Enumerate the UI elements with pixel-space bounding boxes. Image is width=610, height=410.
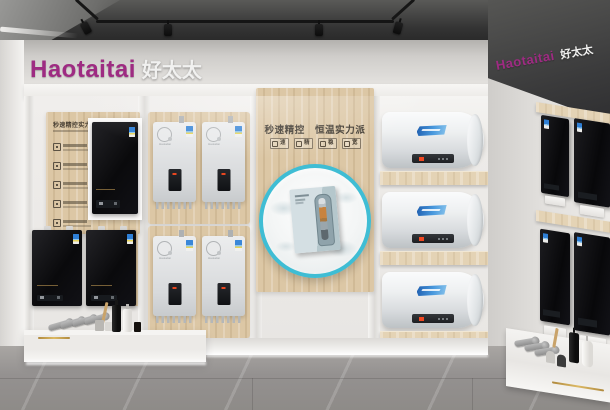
heater-dial	[157, 241, 172, 256]
black-gas-heater	[92, 122, 138, 214]
heater-display	[168, 283, 181, 305]
brand-latin: Haotaitai	[30, 56, 136, 84]
floor-seam	[472, 378, 473, 410]
heater-display	[544, 183, 559, 191]
heater-display	[96, 200, 120, 207]
feature-icon	[53, 219, 61, 227]
heater-brand-text: Haotaitai	[208, 142, 220, 146]
track-spotlight	[164, 24, 172, 36]
product-cutaway-card	[289, 186, 340, 254]
energy-label-icon	[577, 122, 582, 132]
shelf-strip	[380, 171, 488, 185]
feature-badge: 速	[270, 138, 289, 149]
black-wall-heater	[541, 115, 569, 197]
heater-pipe	[179, 230, 184, 237]
heater-pipes	[205, 202, 242, 209]
energy-label-icon	[544, 119, 549, 129]
tank-end-cap	[467, 274, 483, 326]
heater-pipes	[156, 316, 193, 323]
white-gas-heater: Haotaitai	[153, 122, 196, 202]
heater-display	[217, 169, 230, 191]
tank-decal	[417, 125, 447, 136]
canister	[546, 350, 555, 363]
feature-icon	[53, 162, 61, 170]
heater-display	[578, 318, 598, 328]
heater-brand-text: Haotaitai	[208, 256, 220, 260]
gold-towel-bar	[38, 337, 70, 339]
heater-brand-text: Haotaitai	[159, 256, 171, 260]
black-wall-heater	[574, 232, 610, 336]
brand-logo-left: Haotaitai 好太太	[30, 54, 202, 84]
heating-element	[318, 198, 329, 240]
black-wall-heater	[540, 229, 570, 326]
gold-trim-line	[37, 285, 58, 286]
shelf-strip	[380, 251, 488, 265]
energy-label-icon	[543, 233, 548, 243]
white-gas-heater: Haotaitai	[153, 236, 196, 316]
gold-trim-line	[91, 285, 112, 286]
heater-dial	[206, 241, 221, 256]
canister	[557, 354, 566, 367]
white-pump-bottle	[582, 340, 593, 368]
black-wall-heater	[574, 118, 610, 208]
energy-label-icon	[235, 126, 242, 137]
tank-end-cap	[467, 194, 483, 246]
feature-row	[53, 199, 93, 213]
heater-display	[37, 295, 63, 301]
feature-badge: 精	[294, 138, 313, 149]
black-gas-heater	[86, 230, 136, 306]
stability-icon	[320, 141, 326, 147]
storage-water-heater	[382, 112, 484, 168]
tank-decal	[417, 285, 447, 296]
energy-label-icon	[127, 234, 133, 244]
heater-brand-text: Haotaitai	[159, 142, 171, 146]
heater-pipes	[205, 316, 242, 323]
feature-row	[53, 180, 93, 194]
cutaway-window	[314, 193, 335, 246]
baseboard-glow	[206, 352, 488, 357]
track-light-rail	[96, 20, 394, 23]
energy-label-icon	[235, 240, 242, 251]
gold-trim-line	[96, 189, 115, 190]
feature-badge: 稳	[318, 138, 337, 149]
white-gas-heater: Haotaitai	[202, 236, 245, 316]
energy-label-icon	[186, 126, 193, 137]
energy-label-icon	[577, 236, 582, 246]
heater-display	[543, 309, 560, 318]
floor-seam	[252, 378, 253, 410]
storage-water-heater	[382, 272, 484, 328]
gold-towel-bar	[552, 381, 604, 391]
energy-label-icon	[73, 234, 79, 244]
wide-range-icon	[344, 141, 350, 147]
mount-box	[545, 195, 565, 206]
white-pump-bottle	[123, 309, 132, 332]
energy-label-icon	[186, 240, 193, 251]
campaign-headline: 秒速精控 恒温实力派	[256, 122, 374, 136]
heater-display	[217, 283, 230, 305]
showroom-scene: Haotaitai 好太太 秒速精控实力派	[0, 0, 610, 410]
feature-icon	[53, 181, 61, 189]
brand-cjk: 好太太	[142, 54, 202, 83]
feature-icon	[53, 143, 61, 151]
energy-label-icon	[129, 127, 135, 137]
heater-dial	[157, 127, 172, 142]
heater-display	[168, 169, 181, 191]
track-spotlight	[315, 24, 323, 36]
tank-control-panel	[412, 154, 454, 163]
tank-decal	[417, 205, 447, 216]
tank-end-cap	[467, 114, 483, 166]
counter-box	[134, 322, 141, 332]
heater-display	[91, 295, 117, 301]
black-gas-heater	[32, 230, 82, 306]
feature-icon	[53, 200, 61, 208]
white-gas-heater: Haotaitai	[202, 122, 245, 202]
precision-icon	[296, 141, 302, 147]
side-wall-left	[0, 40, 24, 360]
tank-control-panel	[412, 314, 454, 323]
campaign-panel: 秒速精控 恒温实力派 速 精 稳 宽	[256, 88, 374, 292]
black-pump-bottle	[569, 332, 579, 364]
feature-badge: 宽	[342, 138, 361, 149]
heater-pipe	[228, 230, 233, 237]
badge-row: 速 精 稳 宽	[256, 138, 374, 149]
heater-pipe	[228, 116, 233, 123]
speed-icon	[272, 141, 278, 147]
heater-display	[578, 192, 598, 201]
heater-pipes	[156, 202, 193, 209]
storage-water-heater	[382, 192, 484, 248]
feature-row	[53, 161, 93, 175]
tank-control-panel	[412, 234, 454, 243]
heater-dial	[206, 127, 221, 142]
heater-pipe	[179, 116, 184, 123]
black-pump-bottle	[112, 305, 121, 332]
feature-circle-display	[259, 164, 371, 278]
mount-box	[580, 205, 604, 218]
counter-underglow	[26, 358, 206, 365]
feature-row	[53, 142, 93, 156]
counter-box	[95, 320, 104, 331]
